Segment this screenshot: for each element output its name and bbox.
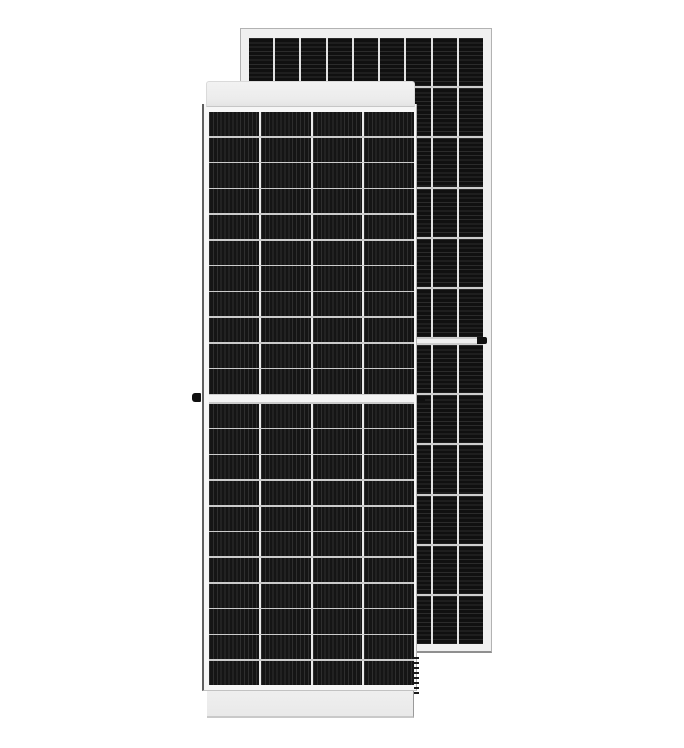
panel-center-gap (209, 395, 414, 402)
cell-row (209, 215, 414, 239)
solar-cell (459, 38, 483, 86)
solar-cell (364, 532, 414, 556)
solar-cell (209, 138, 259, 162)
front-panel-cell-grid (209, 112, 414, 685)
solar-cell (433, 289, 457, 337)
solar-cell (209, 532, 259, 556)
solar-cell (433, 546, 457, 594)
solar-cell (364, 584, 414, 608)
cell-row (209, 266, 414, 290)
cell-row (209, 532, 414, 556)
cell-row (209, 241, 414, 265)
cell-row (209, 163, 414, 187)
solar-cell (364, 661, 414, 685)
solar-cell (261, 558, 311, 582)
solar-cell (313, 532, 363, 556)
solar-cell (261, 429, 311, 453)
solar-cell (261, 635, 311, 659)
solar-cell (313, 266, 363, 290)
cell-row (209, 138, 414, 162)
drain-hole-dash (414, 682, 419, 684)
solar-cell (209, 481, 259, 505)
solar-cell (364, 507, 414, 531)
solar-cell (261, 532, 311, 556)
solar-cell (209, 609, 259, 633)
solar-cell (433, 88, 457, 136)
drain-hole-dash (414, 667, 419, 669)
solar-cell (364, 344, 414, 368)
solar-cell (313, 404, 363, 428)
solar-cell (209, 558, 259, 582)
solar-cell (433, 189, 457, 237)
solar-cell (209, 318, 259, 342)
solar-cell (433, 345, 457, 393)
solar-cell (209, 112, 259, 136)
drain-hole-dash (414, 677, 419, 679)
solar-cell (459, 546, 483, 594)
solar-cell (313, 292, 363, 316)
cell-row (209, 507, 414, 531)
solar-cell (209, 189, 259, 213)
front-panel-bottom-frame-edge (207, 691, 414, 718)
cell-row (209, 558, 414, 582)
solar-cell (261, 507, 311, 531)
drain-hole-dash (414, 692, 419, 694)
solar-cell (209, 661, 259, 685)
front-solar-panel (202, 104, 417, 691)
solar-cell (209, 215, 259, 239)
solar-cell (313, 241, 363, 265)
solar-cell (328, 38, 352, 86)
solar-cell (313, 609, 363, 633)
solar-cell (459, 189, 483, 237)
solar-cell (364, 266, 414, 290)
grounding-clip-right (417, 396, 425, 401)
solar-cell (209, 635, 259, 659)
drain-hole-dash (414, 662, 419, 664)
solar-cell (364, 138, 414, 162)
cell-row (209, 292, 414, 316)
solar-cell (364, 318, 414, 342)
solar-cell (364, 404, 414, 428)
solar-cell (364, 429, 414, 453)
solar-cell (459, 496, 483, 544)
solar-cell (209, 241, 259, 265)
solar-cell (380, 38, 404, 86)
solar-cell (209, 584, 259, 608)
solar-cell (261, 661, 311, 685)
cell-row (209, 429, 414, 453)
cell-row (209, 455, 414, 479)
solar-cell (261, 189, 311, 213)
solar-cell (459, 345, 483, 393)
solar-cell (364, 455, 414, 479)
solar-cell (261, 609, 311, 633)
solar-cell (313, 481, 363, 505)
solar-cell (459, 445, 483, 493)
rear-panel-grounding-clip (477, 337, 487, 344)
solar-cell (313, 507, 363, 531)
solar-cell (459, 88, 483, 136)
cell-row (209, 609, 414, 633)
solar-cell (433, 239, 457, 287)
solar-cell (364, 292, 414, 316)
solar-cell (433, 395, 457, 443)
solar-cell (459, 239, 483, 287)
solar-cell (261, 215, 311, 239)
solar-cell (354, 38, 378, 86)
solar-cell (209, 507, 259, 531)
solar-cell (433, 445, 457, 493)
solar-cell (313, 344, 363, 368)
solar-cell (261, 369, 311, 393)
solar-cell (261, 241, 311, 265)
solar-cell (364, 189, 414, 213)
solar-cell (261, 318, 311, 342)
cell-row (209, 404, 414, 428)
solar-cell (313, 661, 363, 685)
drain-hole-dash (414, 657, 419, 659)
solar-cell (364, 241, 414, 265)
solar-cell (261, 292, 311, 316)
solar-cell (364, 163, 414, 187)
solar-cell (261, 344, 311, 368)
solar-cell (209, 455, 259, 479)
solar-cell (313, 112, 363, 136)
solar-cell (275, 38, 299, 86)
solar-cell (313, 369, 363, 393)
solar-cell (364, 369, 414, 393)
solar-cell (209, 266, 259, 290)
solar-cell (313, 635, 363, 659)
cell-row (249, 38, 483, 86)
solar-cell (249, 38, 273, 86)
solar-cell (364, 635, 414, 659)
solar-cell (261, 163, 311, 187)
solar-cell (364, 609, 414, 633)
solar-cell (301, 38, 325, 86)
cell-row (209, 481, 414, 505)
solar-cell (209, 292, 259, 316)
solar-cell (261, 481, 311, 505)
solar-cell (313, 455, 363, 479)
solar-cell (433, 496, 457, 544)
solar-cell (433, 138, 457, 186)
product-image-canvas (0, 0, 684, 748)
solar-cell (209, 404, 259, 428)
cell-row (209, 661, 414, 685)
solar-cell (364, 215, 414, 239)
solar-cell (261, 112, 311, 136)
solar-cell (313, 584, 363, 608)
grounding-clip-left (192, 393, 201, 402)
solar-cell (209, 369, 259, 393)
solar-cell (313, 558, 363, 582)
solar-cell (364, 481, 414, 505)
solar-cell (209, 163, 259, 187)
cell-row (209, 318, 414, 342)
solar-cell (364, 558, 414, 582)
cell-row (209, 369, 414, 393)
cell-row (209, 635, 414, 659)
solar-cell (261, 455, 311, 479)
solar-cell (261, 404, 311, 428)
solar-cell (261, 266, 311, 290)
solar-cell (313, 429, 363, 453)
solar-cell (406, 38, 430, 86)
cell-row (209, 189, 414, 213)
solar-cell (364, 112, 414, 136)
cell-row (209, 112, 414, 136)
cell-row (209, 584, 414, 608)
solar-cell (433, 38, 457, 86)
solar-cell (261, 584, 311, 608)
solar-cell (433, 596, 457, 644)
drain-hole-dash (414, 672, 419, 674)
solar-cell (313, 215, 363, 239)
front-panel-top-frame-edge (206, 81, 415, 107)
solar-cell (313, 318, 363, 342)
solar-cell (261, 138, 311, 162)
solar-cell (459, 395, 483, 443)
cell-row (209, 344, 414, 368)
solar-cell (459, 138, 483, 186)
solar-cell (209, 429, 259, 453)
solar-cell (459, 289, 483, 337)
solar-cell (313, 163, 363, 187)
solar-cell (209, 344, 259, 368)
solar-cell (313, 138, 363, 162)
solar-cell (313, 189, 363, 213)
drain-hole-dash (414, 687, 419, 689)
frame-drain-holes (414, 657, 419, 694)
solar-cell (459, 596, 483, 644)
